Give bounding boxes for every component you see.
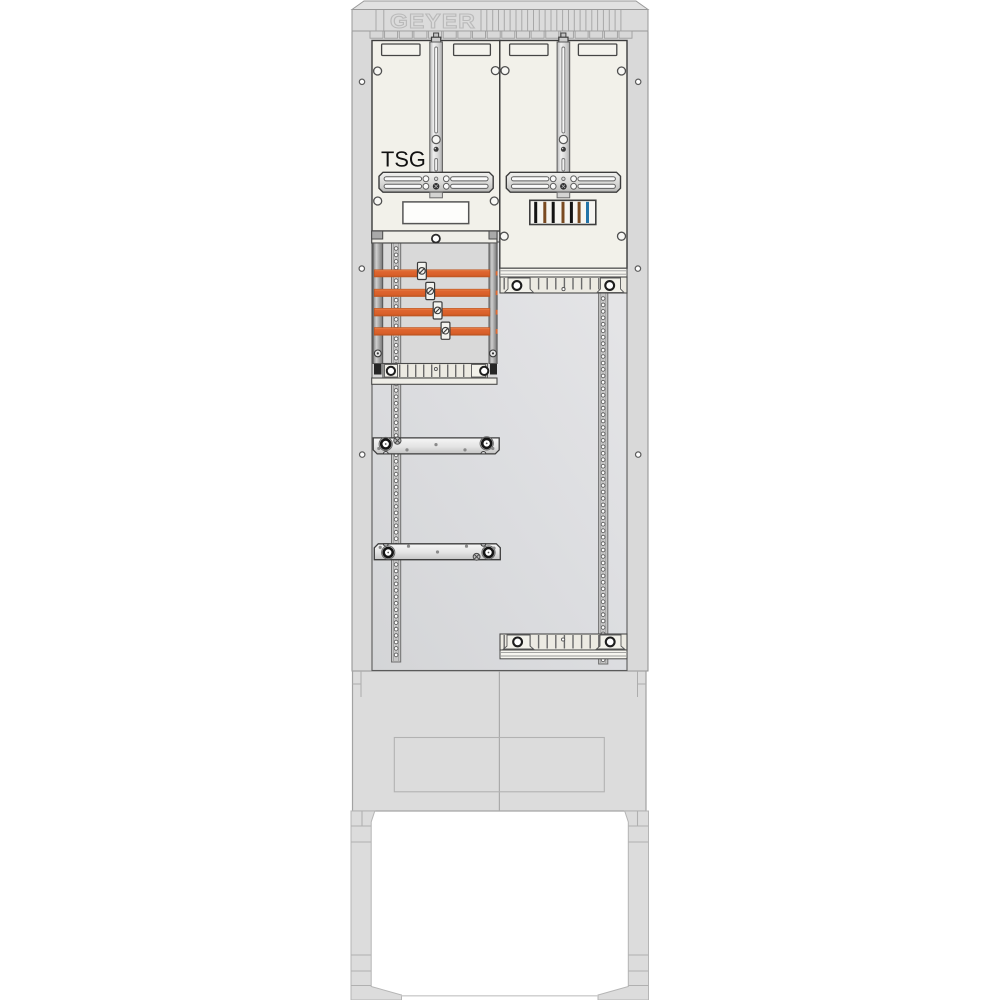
svg-text:TSG: TSG	[381, 146, 426, 171]
svg-text:GEYER: GEYER	[390, 10, 476, 33]
